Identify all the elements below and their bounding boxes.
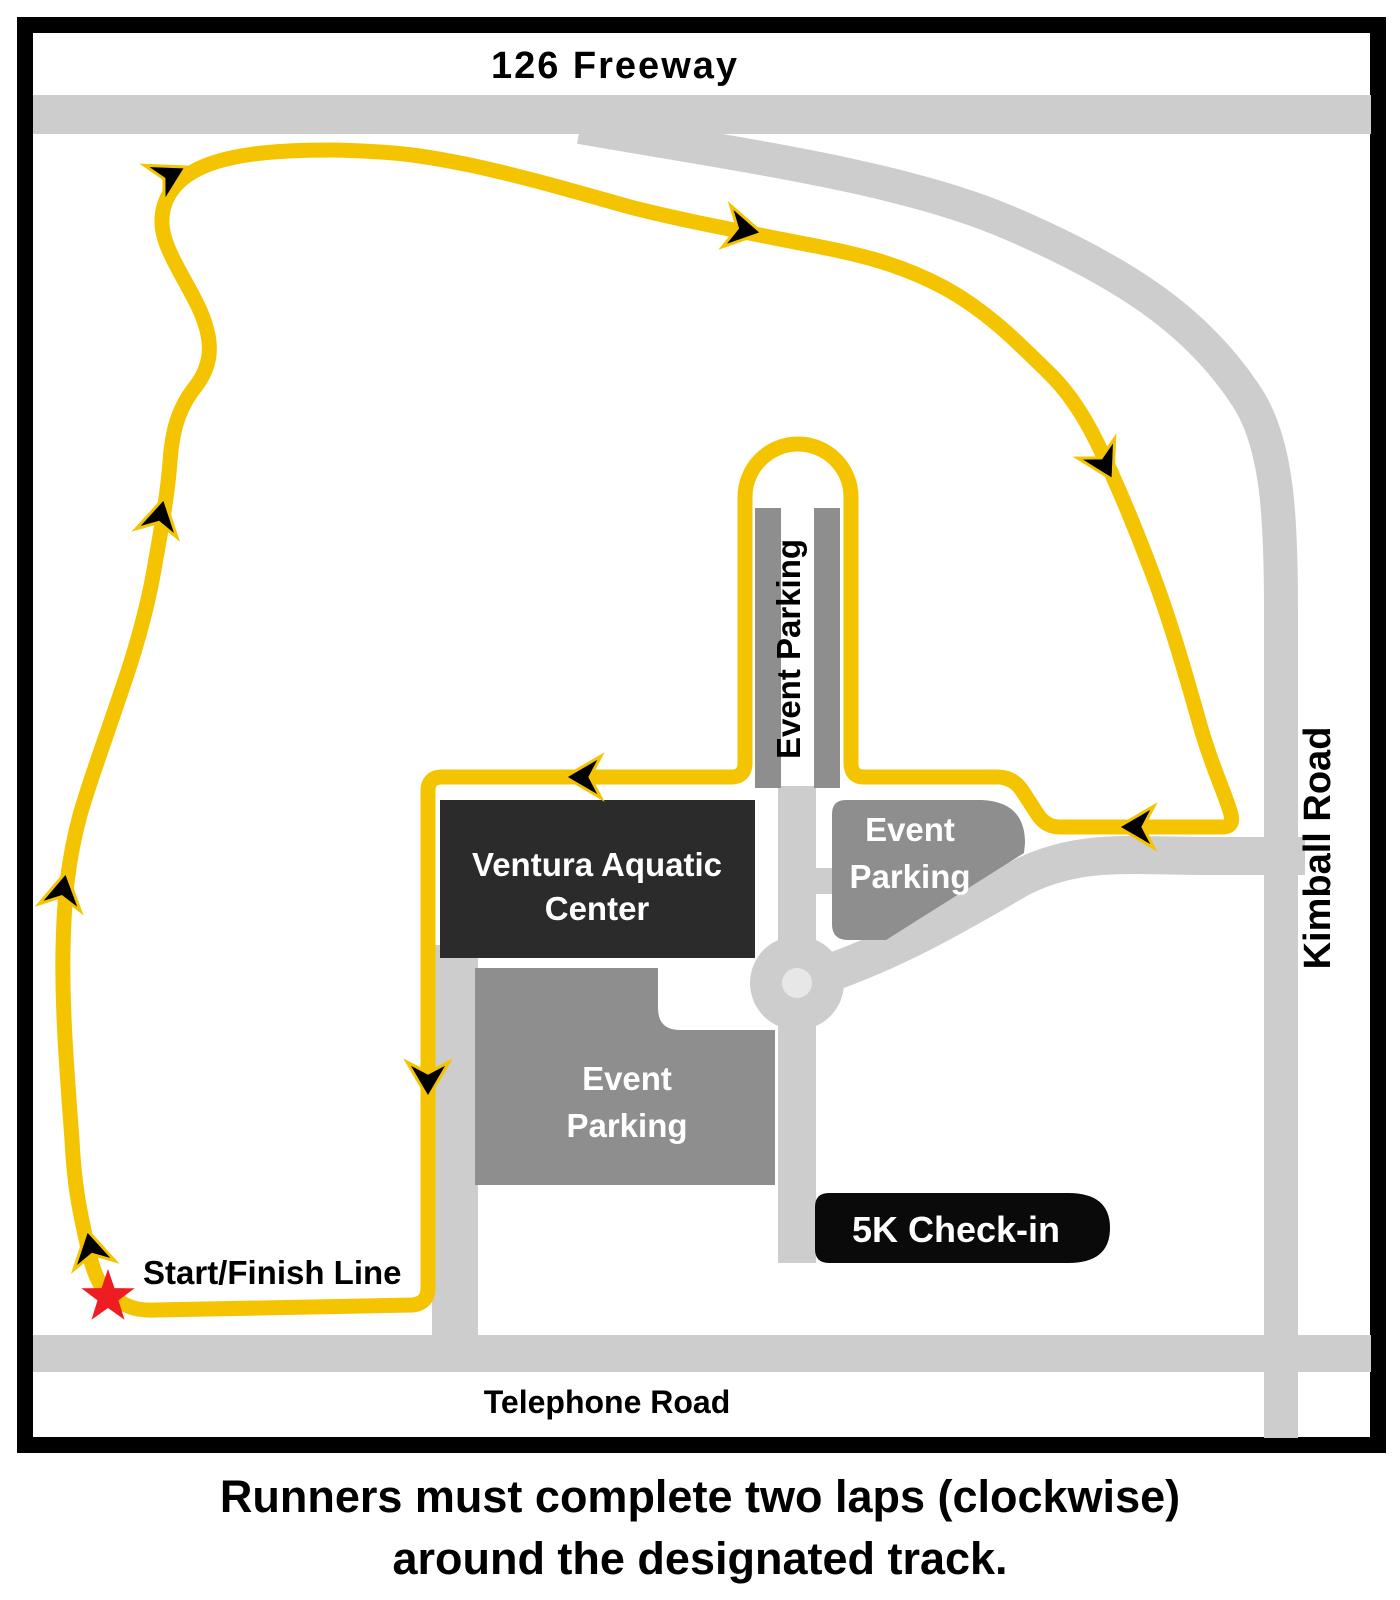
- checkin-label: 5K Check-in: [852, 1209, 1060, 1250]
- start-finish-label: Start/Finish Line: [143, 1254, 402, 1291]
- map-border: [25, 25, 1378, 1445]
- freeway-label: 126 Freeway: [491, 45, 739, 87]
- course-map-page: 126 Freeway Kimball Road Telephone Road …: [0, 0, 1400, 1600]
- caption-line2: around the designated track.: [392, 1533, 1007, 1584]
- kimball-label: Kimball Road: [1297, 727, 1339, 970]
- course-map: 126 Freeway Kimball Road Telephone Road …: [0, 0, 1400, 1600]
- event-parking-south-label-line2: Parking: [566, 1107, 687, 1144]
- event-parking-vertical-label: Event Parking: [770, 539, 807, 759]
- parking-entrance-stub: [812, 868, 834, 894]
- parking-strip-right: [814, 508, 840, 788]
- aquatic-center-label-line1: Ventura Aquatic: [472, 846, 722, 883]
- event-parking-south-label-line1: Event: [582, 1060, 672, 1097]
- roundabout-center-island: [782, 968, 812, 998]
- telephone-road: [33, 1335, 1371, 1372]
- event-parking-east-label-line1: Event: [865, 811, 955, 848]
- access-road-west: [432, 945, 478, 1335]
- caption-line1: Runners must complete two laps (clockwis…: [220, 1471, 1180, 1522]
- aquatic-center-label-line2: Center: [545, 890, 650, 927]
- event-parking-east-label-line2: Parking: [849, 858, 970, 895]
- telephone-label: Telephone Road: [484, 1384, 731, 1420]
- freeway-road: [33, 95, 1371, 134]
